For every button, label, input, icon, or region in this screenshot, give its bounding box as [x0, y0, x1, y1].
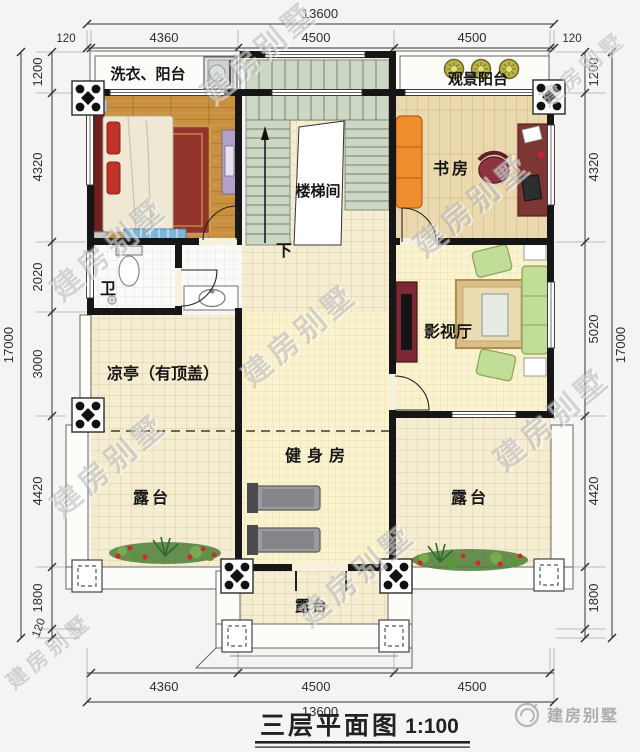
title-underline-thick — [255, 741, 470, 744]
room-label-stairwell: 楼梯间 — [295, 182, 340, 200]
dim-left-seg-4: 4420 — [30, 477, 45, 506]
watermark-text: 建房别墅 — [535, 26, 631, 112]
dim-top-seg-0: 120 — [56, 33, 75, 45]
dim-left-seg-0: 1200 — [30, 58, 45, 87]
dim-left-seg-2: 2020 — [30, 263, 45, 292]
dim-left-seg-5: 1800 — [30, 584, 45, 613]
dim-bottom-seg-2: 4500 — [458, 679, 487, 694]
floor-plan-svg: 13600 120 4360 4500 4500 120 4360 4500 4… — [0, 0, 640, 752]
dim-top-seg-1: 4360 — [150, 30, 179, 45]
dim-left-seg-6: 120 — [30, 617, 48, 639]
title-block: 三层平面图 1:100 — [255, 711, 470, 748]
room-label-terrace-right: 露台 — [451, 488, 489, 507]
dim-right-seg-1: 4320 — [586, 153, 601, 182]
room-label-study: 书房 — [433, 159, 471, 178]
room-label-pavilion: 凉亭（有顶盖） — [107, 364, 219, 383]
dim-left-overall: 17000 — [1, 327, 16, 363]
floor-plan-image: 13600 120 4360 4500 4500 120 4360 4500 4… — [0, 0, 640, 752]
drawing-title: 三层平面图 — [260, 711, 400, 740]
dim-top-seg-4: 120 — [562, 33, 581, 45]
dim-right-overall: 17000 — [613, 327, 628, 363]
dim-right-seg-2: 5020 — [586, 315, 601, 344]
room-label-bathroom: 卫 — [100, 279, 116, 298]
brand-logo-text: 建房别墅 — [547, 706, 619, 725]
brand-logo: 建房别墅 — [516, 704, 619, 726]
dim-right-seg-4: 1800 — [586, 584, 601, 613]
dim-left-seg-1: 4320 — [30, 153, 45, 182]
room-label-media-room: 影视厅 — [424, 322, 472, 341]
room-label-gym: 健身房 — [285, 446, 351, 465]
dim-bottom-seg-1: 4500 — [302, 679, 331, 694]
room-label-view-balcony: 观景阳台 — [448, 70, 508, 88]
dim-right-seg-3: 4420 — [586, 477, 601, 506]
stair-down-label: 下 — [276, 241, 292, 260]
dim-bottom-seg-0: 4360 — [150, 679, 179, 694]
watermark-text: 建房别墅 — [1, 608, 97, 694]
dim-top-seg-3: 4500 — [458, 30, 487, 45]
room-label-terrace-left: 露台 — [133, 488, 171, 507]
room-label-laundry-balcony: 洗衣、阳台 — [110, 65, 185, 83]
dim-left-seg-3: 3000 — [30, 350, 45, 379]
title-underline-thin — [255, 747, 470, 748]
drawing-scale: 1:100 — [405, 715, 459, 738]
